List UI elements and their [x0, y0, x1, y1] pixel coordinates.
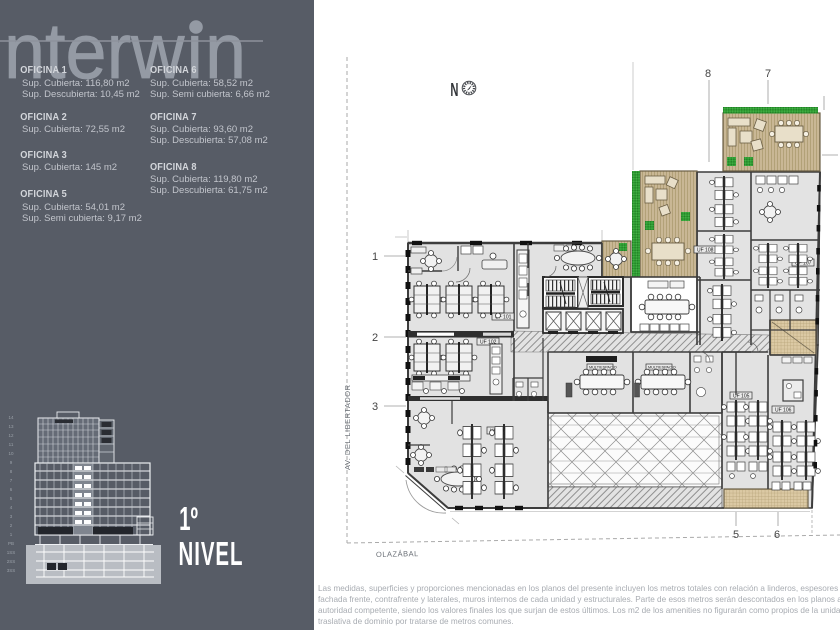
svg-text:Sup. Cubierta: 93,60 m2: Sup. Cubierta: 93,60 m2	[150, 124, 253, 135]
svg-text:Sup. Descubierta: 10,45 m2: Sup. Descubierta: 10,45 m2	[22, 89, 140, 100]
svg-text:Sup. Cubierta: 145 m2: Sup. Cubierta: 145 m2	[22, 162, 117, 173]
svg-text:Sup. Semi cubierta: 6,66 m2: Sup. Semi cubierta: 6,66 m2	[150, 89, 270, 100]
svg-text:Sup. Semi cubierta: 9,17 m2: Sup. Semi cubierta: 9,17 m2	[22, 213, 142, 224]
svg-text:11: 11	[9, 442, 14, 447]
svg-text:14: 14	[8, 415, 14, 420]
svg-text:OFICINA 2: OFICINA 2	[20, 112, 67, 123]
svg-text:NIVEL: NIVEL	[179, 535, 244, 572]
svg-text:OFICINA 5: OFICINA 5	[20, 189, 67, 200]
svg-text:Sup. Cubierta: 54,01 m2: Sup. Cubierta: 54,01 m2	[22, 202, 125, 213]
svg-text:OFICINA 6: OFICINA 6	[150, 65, 197, 76]
svg-text:OFICINA 1: OFICINA 1	[20, 65, 67, 76]
svg-text:1SS: 1SS	[7, 550, 16, 555]
svg-text:OFICINA 3: OFICINA 3	[20, 150, 67, 161]
svg-text:Sup. Descubierta: 61,75 m2: Sup. Descubierta: 61,75 m2	[150, 185, 268, 196]
svg-text:Sup. Descubierta: 57,08 m2: Sup. Descubierta: 57,08 m2	[150, 135, 268, 146]
svg-text:Sup. Cubierta: 58,52 m2: Sup. Cubierta: 58,52 m2	[150, 78, 253, 89]
svg-text:1º: 1º	[179, 500, 198, 537]
svg-text:12: 12	[8, 433, 14, 438]
svg-text:Sup. Cubierta: 72,55 m2: Sup. Cubierta: 72,55 m2	[22, 124, 125, 135]
svg-text:10: 10	[8, 451, 14, 456]
svg-text:Sup. Cubierta: 119,80 m2: Sup. Cubierta: 119,80 m2	[150, 174, 258, 185]
svg-text:PB: PB	[8, 541, 14, 546]
svg-text:OFICINA 7: OFICINA 7	[150, 112, 197, 123]
svg-text:Sup. Cubierta: 116,80 m2: Sup. Cubierta: 116,80 m2	[22, 78, 130, 89]
svg-text:3SS: 3SS	[7, 568, 16, 573]
svg-text:2SS: 2SS	[7, 559, 16, 564]
svg-text:OFICINA 8: OFICINA 8	[150, 162, 197, 173]
svg-text:13: 13	[8, 424, 14, 429]
